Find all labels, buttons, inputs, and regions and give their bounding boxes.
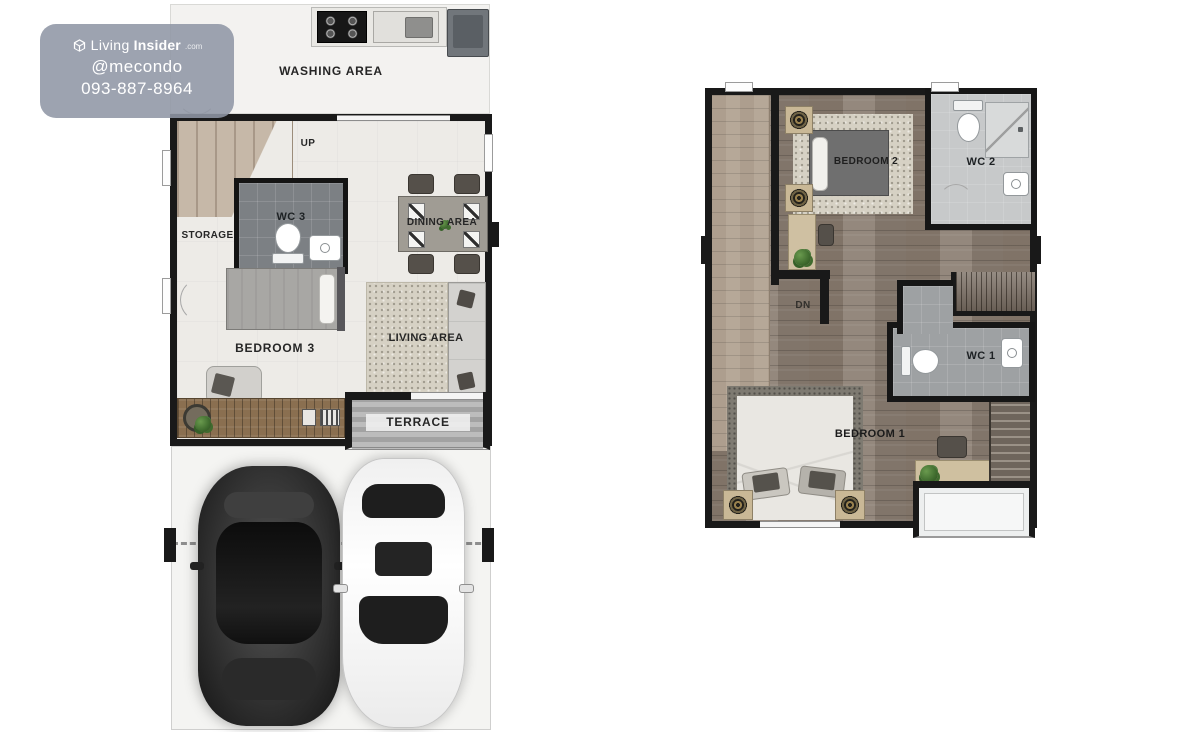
- chair-cushion: [211, 373, 235, 397]
- watermark-handle: @mecondo: [40, 57, 234, 77]
- wall-pier: [701, 236, 711, 264]
- window: [162, 278, 171, 314]
- stove-icon: [317, 11, 367, 43]
- car-trunk: [222, 658, 316, 700]
- car-mirror: [190, 562, 204, 570]
- brand-insider: Insider: [134, 37, 181, 53]
- window: [760, 521, 840, 528]
- placemat: [463, 231, 480, 248]
- bedroom3-bed: [226, 268, 344, 330]
- wc2-basin-icon: [1003, 172, 1029, 196]
- desk-chair: [818, 224, 834, 246]
- second-floor-plan: DN BEDROOM 2 WC 2: [705, 88, 1037, 540]
- dining-chair: [408, 254, 434, 274]
- sink-basin: [405, 17, 433, 38]
- dn-label: DN: [783, 300, 823, 311]
- brand-living: Living: [91, 37, 130, 53]
- bed-accent-pillow: [808, 470, 836, 490]
- sofa-pillow: [456, 289, 475, 308]
- car-mirror: [333, 584, 348, 593]
- wood-deck: [177, 398, 345, 438]
- terrace-wall: [345, 392, 411, 400]
- wc3-room: WC 3: [234, 178, 348, 274]
- shoe-rack: [320, 409, 340, 426]
- car-white: [342, 458, 465, 728]
- dining-area-label: DINING AREA: [380, 217, 504, 228]
- watermark-brand-row: LivingInsider .com: [40, 37, 234, 53]
- nightstand-ring-icon: [789, 110, 809, 130]
- living-insider-logo-icon: [72, 38, 87, 53]
- car-hood: [224, 492, 314, 518]
- top-sliding-door: [337, 115, 450, 121]
- dining-chair: [454, 254, 480, 274]
- bedroom1-label: BEDROOM 1: [805, 428, 935, 440]
- living-area-label: LIVING AREA: [366, 332, 486, 344]
- sofa-pillow: [457, 372, 476, 391]
- car-windshield: [359, 596, 448, 644]
- washing-machine-lid: [453, 15, 483, 48]
- shoe-mat: [302, 409, 316, 426]
- desk-plant-icon: [794, 249, 811, 266]
- nightstand: [723, 490, 753, 520]
- window: [162, 150, 171, 186]
- wc3-basin-icon: [309, 235, 341, 261]
- planter-plant-icon: [195, 416, 211, 432]
- interior-wall: [776, 270, 830, 279]
- wall-pier: [1031, 236, 1041, 264]
- storage-label: STORAGE: [170, 230, 245, 241]
- car-glass-roof: [216, 522, 322, 644]
- nightstand-ring-icon: [727, 494, 749, 516]
- terrace-label: TERRACE: [366, 414, 470, 431]
- bed-headboard: [337, 267, 345, 331]
- toilet-tank: [953, 100, 983, 111]
- wc2-label: WC 2: [931, 156, 1031, 168]
- bedroom3-label: BEDROOM 3: [195, 342, 355, 355]
- window: [484, 134, 493, 172]
- nightstand: [835, 490, 865, 520]
- car-mirror: [459, 584, 474, 593]
- nightstand: [785, 106, 813, 134]
- terrace-sliding-door: [411, 392, 483, 400]
- fence-post: [482, 528, 494, 562]
- car-dark: [198, 466, 340, 726]
- brand-suffix: .com: [185, 42, 202, 51]
- washing-machine-icon: [447, 9, 489, 57]
- shower-icon: [985, 102, 1029, 158]
- wc1-room: WC 1: [887, 322, 1035, 402]
- closet: [951, 272, 1035, 316]
- desk-chair: [937, 436, 967, 458]
- wc1-label: WC 1: [941, 350, 1021, 362]
- bedroom3-door-arc: [180, 278, 224, 322]
- kitchen-sink-icon: [373, 11, 439, 43]
- toilet-tank: [901, 346, 911, 376]
- watermark-phone: 093-887-8964: [40, 79, 234, 99]
- nightstand-ring-icon: [789, 188, 809, 208]
- terrace: TERRACE: [345, 392, 490, 450]
- toilet-icon: [275, 223, 301, 253]
- car-sunroof: [375, 542, 432, 576]
- window: [725, 82, 753, 92]
- placemat: [408, 231, 425, 248]
- interior-wall: [771, 95, 779, 285]
- dining-chair: [454, 174, 480, 194]
- wc2-door-arc: [939, 184, 973, 218]
- fence-post: [164, 528, 176, 562]
- dining-chair: [408, 174, 434, 194]
- shower-drain: [1018, 127, 1023, 132]
- balcony-inner: [924, 493, 1024, 531]
- nightstand: [785, 184, 813, 212]
- bed-pillow: [319, 274, 335, 324]
- toilet-icon: [912, 349, 939, 374]
- toilet-tank: [272, 253, 304, 264]
- bedroom2-desk: [788, 214, 816, 270]
- bed-accent-pillow: [752, 472, 780, 492]
- wc2-room: WC 2: [925, 88, 1037, 230]
- balcony: [913, 481, 1035, 538]
- floorplan-canvas: WASHING AREA UP STORAGE WC 3 DINING: [0, 0, 1200, 732]
- up-label: UP: [288, 138, 328, 149]
- nightstand-ring-icon: [839, 494, 861, 516]
- watermark: LivingInsider .com @mecondo 093-887-8964: [40, 24, 234, 118]
- car-rear-window: [362, 484, 445, 518]
- planter-pot: [183, 404, 211, 432]
- toilet-icon: [957, 113, 980, 142]
- bedroom2-label: BEDROOM 2: [801, 156, 931, 167]
- wc1-upper-nook: [897, 280, 953, 334]
- window: [931, 82, 959, 92]
- wc3-label: WC 3: [239, 211, 343, 223]
